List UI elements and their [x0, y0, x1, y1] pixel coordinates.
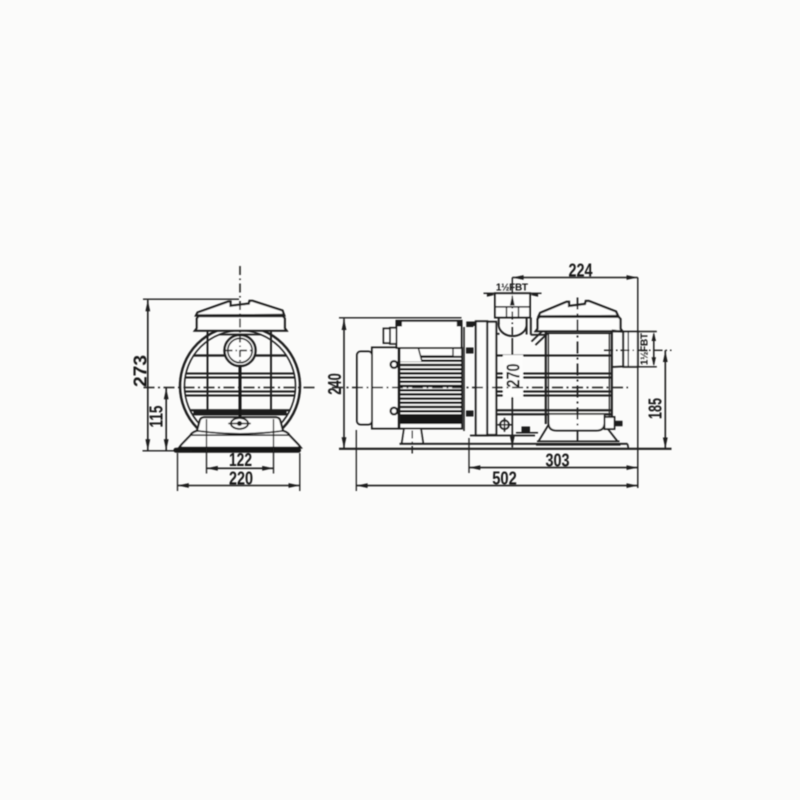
svg-text:240: 240 — [325, 373, 345, 395]
svg-text:185: 185 — [645, 398, 665, 419]
svg-text:1½FBT: 1½FBT — [640, 333, 651, 365]
svg-text:122: 122 — [229, 450, 252, 470]
svg-text:273: 273 — [130, 355, 150, 387]
svg-text:303: 303 — [546, 451, 570, 471]
svg-text:220: 220 — [229, 468, 253, 488]
svg-text:502: 502 — [492, 469, 517, 489]
svg-text:270: 270 — [504, 364, 524, 388]
svg-text:115: 115 — [146, 406, 166, 428]
svg-text:224: 224 — [569, 261, 593, 281]
